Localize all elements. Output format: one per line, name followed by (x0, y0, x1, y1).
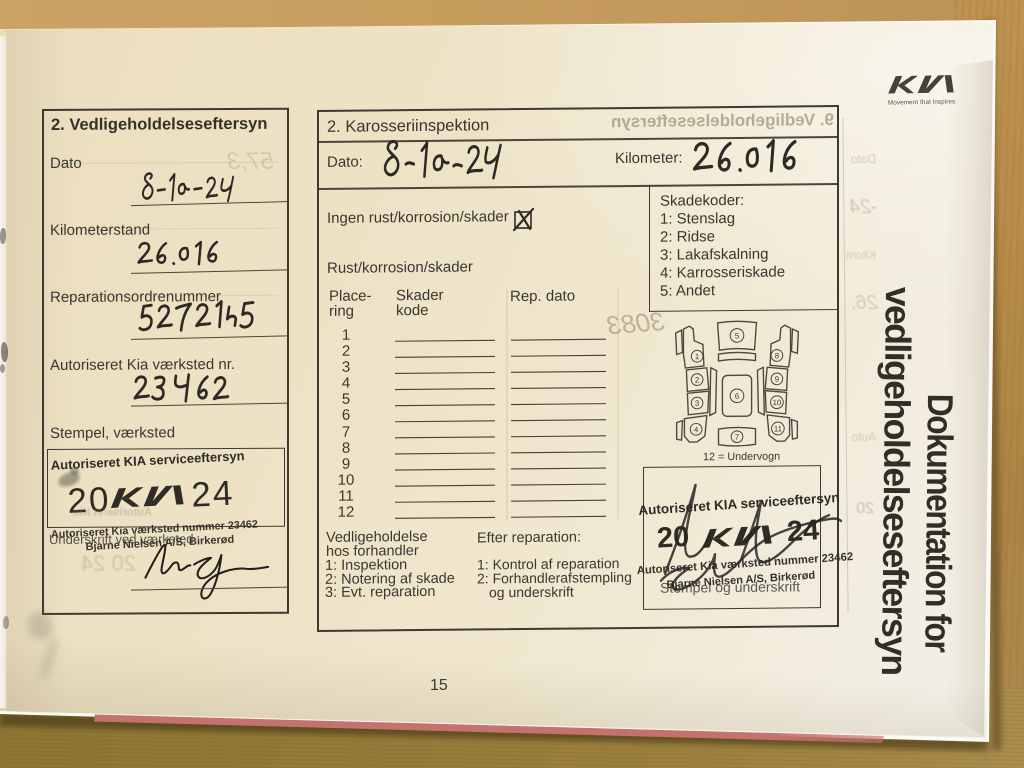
svg-text:9: 9 (775, 375, 779, 384)
svg-text:1: 1 (695, 352, 699, 361)
svg-text:3: 3 (695, 399, 699, 408)
svg-text:6: 6 (735, 392, 739, 401)
svg-text:8: 8 (775, 351, 779, 360)
svg-text:2: 2 (695, 376, 699, 385)
svg-text:11: 11 (774, 424, 782, 433)
svg-text:10: 10 (773, 398, 782, 407)
svg-text:4: 4 (694, 425, 699, 434)
svg-text:7: 7 (735, 433, 739, 442)
svg-text:5: 5 (735, 331, 739, 340)
